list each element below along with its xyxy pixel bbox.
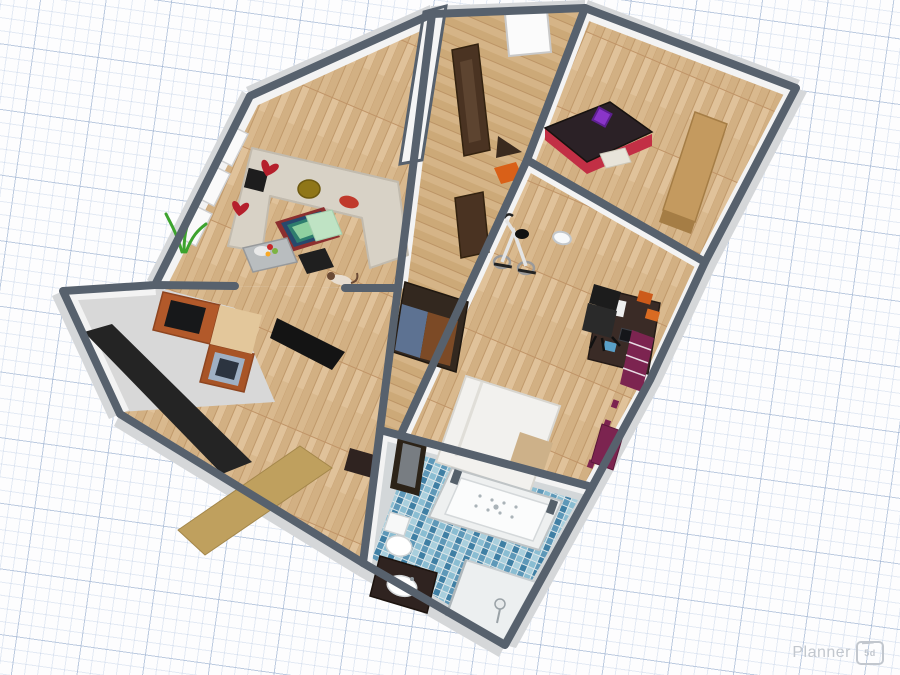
floorplan-render [0, 0, 900, 675]
planner5d-watermark: Planner 5d [792, 641, 884, 665]
watermark-text: Planner [792, 644, 851, 662]
gold-cushion[interactable] [298, 180, 320, 198]
planner5d-logo-icon: 5d [856, 641, 884, 665]
logo-roof-shape [862, 642, 874, 650]
watermark-badge-text: 5d [864, 648, 876, 658]
living-south-wall-a[interactable] [155, 285, 235, 286]
planner-3d-viewport[interactable]: Planner 5d [0, 0, 900, 675]
fruit-yellow [266, 252, 271, 257]
fruit-green [272, 248, 278, 254]
fruit-red [267, 244, 273, 250]
entry-door[interactable] [505, 10, 551, 56]
